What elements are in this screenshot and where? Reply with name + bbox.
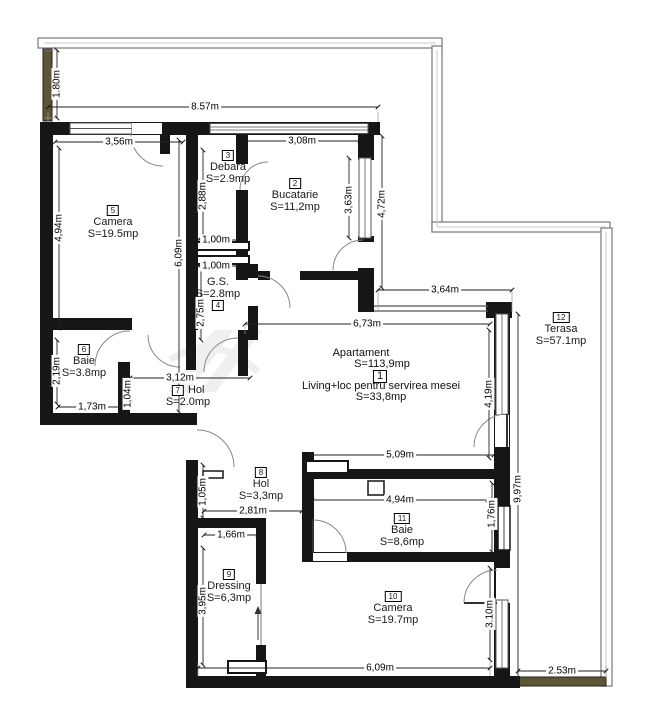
room-number: 4 bbox=[212, 300, 224, 311]
room-area: S=3.8mp bbox=[62, 368, 106, 380]
room-label-camera-5: 5 Camera S=19.5mp bbox=[88, 205, 138, 240]
room-label-dressing: 9 Dressing S=6,3mp bbox=[207, 569, 251, 604]
dim-baie6-width: 1,73m bbox=[76, 402, 108, 413]
room-name: G.S. bbox=[196, 277, 240, 289]
dim-baie11-top-width: 5,09m bbox=[384, 450, 416, 461]
room-name: Baie bbox=[380, 525, 424, 537]
dim-dressing-door-width: 1,66m bbox=[215, 530, 247, 541]
dim-parapet-height: 1.80m bbox=[52, 68, 63, 100]
room-label-debara: 3 Debara S=2.9mp bbox=[206, 150, 250, 185]
room-label-gs: G.S. S=2.8mp 4 bbox=[196, 277, 240, 312]
dim-hol8-width: 2,81m bbox=[237, 506, 269, 517]
room-number: 5 bbox=[107, 205, 119, 216]
dim-living-glazing-height: 4,19m bbox=[484, 378, 495, 410]
room-number: 8 bbox=[255, 467, 267, 478]
room-label-bucatarie: 2 Bucatarie S=11,2mp bbox=[270, 178, 320, 213]
dim-bucatarie-depth: 4,72m bbox=[377, 188, 388, 220]
room-name: Baie bbox=[62, 356, 106, 368]
room-area: S=57.1mp bbox=[536, 336, 586, 348]
dim-gs-width-lower: 1,00m bbox=[200, 261, 232, 272]
dim-terasa-side-height: 9,97m bbox=[513, 473, 524, 505]
dim-bucatarie-width: 3,08m bbox=[286, 136, 318, 147]
room-number: 12 bbox=[553, 312, 570, 323]
room-label-camera-10: 10 Camera S=19.7mp bbox=[368, 591, 418, 626]
dim-hol7-height: 1,04m bbox=[123, 378, 134, 410]
dim-gs-width-upper: 1,00m bbox=[200, 235, 232, 246]
room-number: 10 bbox=[385, 591, 402, 602]
room-number: 2 bbox=[289, 178, 301, 189]
room-name: Debara bbox=[206, 162, 250, 174]
room-name: Dressing bbox=[207, 581, 251, 593]
room-area: S=2.9mp bbox=[206, 174, 250, 186]
apartment-total-area: S=113,9mp bbox=[354, 359, 410, 370]
dim-hol8-height: 1,05m bbox=[198, 476, 209, 508]
room-label-hol-7: 7 Hol S=2.0mp bbox=[166, 385, 210, 409]
room-number: 11 bbox=[394, 513, 410, 524]
room-number: 3 bbox=[222, 150, 234, 161]
room-number: 9 bbox=[223, 569, 235, 580]
dim-terasa-top-width: 3,64m bbox=[429, 285, 461, 296]
room-area: S=8,6mp bbox=[380, 537, 424, 549]
room-name: Terasa bbox=[536, 324, 586, 336]
room-name: Camera bbox=[88, 217, 138, 229]
dim-camera5-height: 4,94m bbox=[54, 212, 65, 244]
dim-baie11-height: 1,76m bbox=[487, 498, 498, 530]
dim-camera10-width: 6,09m bbox=[364, 663, 396, 674]
dim-terasa-bottom-width: 2.53m bbox=[546, 666, 578, 677]
room-name: Hol bbox=[239, 479, 283, 491]
room-label-terasa: 12 Terasa S=57.1mp bbox=[536, 312, 586, 347]
room-area: S=11,2mp bbox=[270, 202, 320, 214]
room-number: 7 bbox=[172, 385, 184, 396]
room-area: S=19.5mp bbox=[88, 229, 138, 241]
labels-overlay: 1.80m 8.57m 3,56m 3,08m 2,88m 3,63m 4,72… bbox=[0, 0, 650, 720]
room-area: S=2.8mp bbox=[196, 289, 240, 301]
dim-camera5-width: 3,56m bbox=[103, 137, 135, 148]
dim-living-width: 6,73m bbox=[351, 319, 383, 330]
dim-bucatarie-window-height: 3,63m bbox=[344, 184, 355, 216]
dim-top-width: 8.57m bbox=[189, 102, 221, 113]
room-area: S=2.0mp bbox=[166, 397, 210, 409]
floor-plan: 1.80m 8.57m 3,56m 3,08m 2,88m 3,63m 4,72… bbox=[0, 0, 650, 720]
room-label-hol-8: 8 Hol S=3,3mp bbox=[239, 467, 283, 502]
room-name: Camera bbox=[368, 603, 418, 615]
room-number: 6 bbox=[78, 344, 90, 355]
room-area: S=19.7mp bbox=[368, 615, 418, 627]
dim-corridor-height: 6,09m bbox=[174, 237, 185, 269]
dim-baie11-width: 4,94m bbox=[384, 495, 416, 506]
room-area: S=6,3mp bbox=[207, 593, 251, 605]
dim-camera10-door-height: 3.10m bbox=[485, 598, 496, 630]
room-label-baie-11: 11 Baie S=8,6mp bbox=[380, 513, 424, 548]
room-label-baie-6: 6 Baie S=3.8mp bbox=[62, 344, 106, 379]
room-area: S=3,3mp bbox=[239, 491, 283, 503]
living-area: S=33,8mp bbox=[356, 392, 406, 403]
dim-hol7-width: 3,12m bbox=[164, 373, 196, 384]
room-name: Bucatarie bbox=[270, 190, 320, 202]
